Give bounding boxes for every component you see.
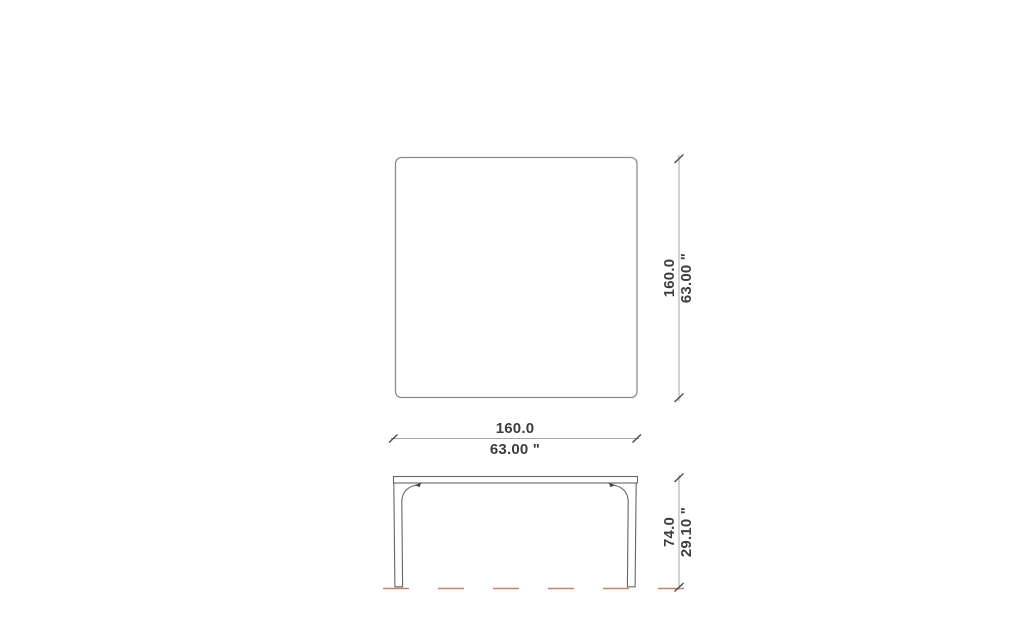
tabletop-outline [396, 158, 638, 398]
height-metric-value: 74.0 [661, 507, 678, 557]
depth-metric-value: 160.0 [661, 253, 678, 303]
height-dimension-label: 74.0 29.10 " [661, 507, 695, 557]
table-front-view [394, 477, 638, 587]
height-imperial-value: 29.10 " [678, 507, 695, 557]
drawing-svg [0, 0, 1024, 640]
depth-dimension-label: 160.0 63.00 " [661, 253, 695, 303]
width-imperial-value: 63.00 " [490, 441, 540, 458]
table-leg-left [394, 483, 420, 587]
table-leg-right [611, 483, 637, 587]
table-top-view [396, 158, 638, 398]
technical-drawing-canvas: 160.0 63.00 " 160.0 63.00 " 74.0 29.10 " [0, 0, 1024, 640]
width-metric-value: 160.0 [496, 420, 535, 437]
tabletop-front [394, 477, 638, 484]
depth-imperial-value: 63.00 " [678, 253, 695, 303]
